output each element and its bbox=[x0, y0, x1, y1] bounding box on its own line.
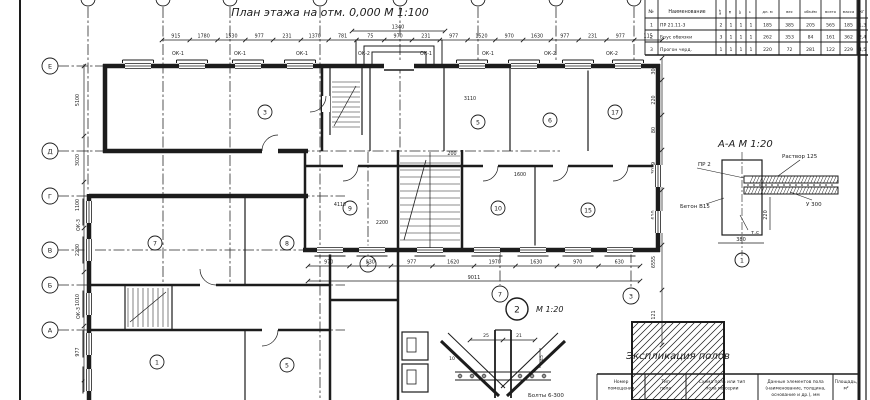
room-number: 3 bbox=[263, 109, 267, 116]
blueprint-sheet: План этажа на отм. 0,000 М 1:100 bbox=[0, 0, 870, 400]
spec-cell: 385 bbox=[785, 23, 794, 29]
grid-label: 7 bbox=[498, 291, 502, 299]
explication-header: Тип bbox=[660, 379, 670, 385]
room-number: 9 bbox=[348, 205, 352, 212]
section-label: У 300 bbox=[806, 202, 822, 208]
explication-header: (наименование, толщина, bbox=[765, 386, 825, 392]
dim-label: 1970 bbox=[489, 260, 501, 266]
grid-bubble-cut bbox=[156, 0, 170, 6]
section-label: Раствор 125 bbox=[782, 154, 818, 160]
explication-header: основание и др.), мм bbox=[771, 392, 819, 398]
room-number: 1 bbox=[155, 359, 159, 366]
section-label: Бетон В15 bbox=[680, 204, 710, 210]
window-mark: ОК-3 bbox=[76, 307, 82, 319]
spec-cell: 2,4 bbox=[859, 35, 866, 41]
detail-scale: М 1:20 bbox=[536, 305, 563, 314]
spec-header: кг bbox=[860, 9, 865, 14]
explication-header: Данные элементов пола bbox=[767, 379, 824, 385]
slab-dot bbox=[825, 184, 827, 186]
grid-label: Г bbox=[48, 193, 52, 201]
grid-label: 2 bbox=[366, 261, 370, 269]
window-mark: ОК-2 bbox=[358, 51, 370, 57]
spec-cell: 1 bbox=[730, 23, 733, 29]
spec-cell: 1 bbox=[750, 23, 753, 29]
dim-label: 1620 bbox=[447, 260, 459, 266]
spec-cell: 1 bbox=[740, 47, 743, 53]
dim-label: 80 bbox=[651, 127, 657, 133]
dim-label: 977 bbox=[75, 347, 81, 356]
dim-label: 2230 bbox=[75, 244, 81, 256]
spec-cell: 353 bbox=[785, 35, 794, 41]
walls-exterior bbox=[89, 64, 660, 400]
spec-cell: 2 bbox=[650, 35, 653, 41]
spec-cell: 122 bbox=[826, 47, 835, 53]
slab-dot bbox=[813, 184, 815, 186]
slab-dot bbox=[801, 184, 803, 186]
doors bbox=[200, 96, 628, 346]
dim-label: 1780 bbox=[198, 34, 210, 40]
room-number: 5 bbox=[476, 119, 480, 126]
dim-label: 1530 bbox=[225, 34, 237, 40]
spec-cell: 185 bbox=[763, 23, 772, 29]
walls-partitions bbox=[125, 66, 588, 400]
spec-header: всего bbox=[825, 9, 837, 14]
slab-dot bbox=[819, 184, 821, 186]
spec-cell: 185 bbox=[844, 23, 853, 29]
spec-cell: 1 bbox=[730, 47, 733, 53]
spec-cell: ПР 21.11-3 bbox=[660, 23, 685, 29]
grid-label: 3 bbox=[629, 293, 633, 301]
window-mark: ОК-1 bbox=[234, 51, 246, 57]
dim-label: 1600 bbox=[514, 172, 526, 178]
slab-dot bbox=[747, 184, 749, 186]
spec-cell: 281 bbox=[806, 47, 815, 53]
spec-cell: 1,3 bbox=[859, 23, 866, 29]
explication-header: Номер bbox=[614, 379, 629, 385]
spec-cell: 3 bbox=[720, 35, 723, 41]
grid-label: Е bbox=[48, 63, 52, 71]
room-number: 8 bbox=[285, 240, 289, 247]
spec-cell: 1 bbox=[740, 23, 743, 29]
spec-cell: 72 bbox=[787, 47, 793, 53]
dim-label: 6555 bbox=[651, 256, 657, 268]
generated-annotations: 9151780153097723113707817597023197715209… bbox=[42, 0, 870, 400]
dim-label: 977 bbox=[616, 34, 625, 40]
spec-cell: 1 bbox=[720, 47, 723, 53]
grid-label: Б bbox=[48, 282, 52, 290]
spec-header: шт bbox=[717, 8, 722, 14]
dim-label: 970 bbox=[573, 260, 582, 266]
dim-label: 1520 bbox=[475, 34, 487, 40]
dim-label: 231 bbox=[588, 34, 597, 40]
dim-label: 1010 bbox=[75, 294, 81, 306]
window-mark: ОК-1 bbox=[482, 51, 494, 57]
dim-label: 75 bbox=[367, 34, 373, 40]
window-mark: ОК-1 bbox=[420, 51, 432, 57]
explication-header: м² bbox=[843, 387, 848, 392]
slab-dot bbox=[789, 184, 791, 186]
dim-label: 781 bbox=[338, 34, 347, 40]
window-mark: ОК-1 bbox=[172, 51, 184, 57]
floor-explication: Экспликация полов bbox=[597, 351, 859, 400]
grid-bubble-cut bbox=[549, 0, 563, 6]
node-detail-2: 2 М 1:20 Болты 6-300 bbox=[441, 298, 565, 399]
explication-title: Экспликация полов bbox=[625, 351, 730, 362]
spec-cell: Брус обвязки bbox=[660, 35, 692, 41]
spec-header: № bbox=[648, 9, 654, 15]
spec-cell: 3 bbox=[650, 47, 653, 53]
grid-bubble-cut bbox=[471, 0, 485, 6]
window-mark: ОК-2 bbox=[606, 51, 618, 57]
slab-dot bbox=[783, 184, 785, 186]
spec-cell: 4,5 bbox=[859, 47, 866, 53]
spec-header: кг bbox=[737, 10, 742, 14]
section-label: т.с bbox=[751, 230, 759, 236]
section-label: ПР 2 bbox=[698, 162, 711, 168]
slab-dot bbox=[765, 184, 767, 186]
dim-label: 977 bbox=[449, 34, 458, 40]
dim-label: 5100 bbox=[75, 94, 81, 106]
dim-label: 231 bbox=[421, 34, 430, 40]
slab-dot bbox=[759, 184, 761, 186]
slab-dot bbox=[753, 184, 755, 186]
slab-dot bbox=[807, 184, 809, 186]
spec-header: вес bbox=[786, 9, 793, 14]
spec-cell: 2 bbox=[720, 23, 723, 29]
spec-header: т bbox=[747, 10, 752, 13]
detail-note: Болты 6-300 bbox=[528, 393, 564, 399]
dim-total: 9011 bbox=[468, 275, 481, 281]
window-mark: ОК-1 bbox=[296, 51, 308, 57]
room-number: 17 bbox=[611, 109, 619, 116]
spec-cell: 262 bbox=[763, 35, 772, 41]
detail-dim: 21 bbox=[516, 333, 522, 339]
section-axis-bubble: 1 bbox=[740, 257, 744, 265]
dim-label: 977 bbox=[407, 260, 416, 266]
grid-label: Д bbox=[47, 148, 52, 156]
slab-dot bbox=[771, 184, 773, 186]
room-number: 15 bbox=[584, 207, 592, 214]
spec-header: масса bbox=[843, 9, 855, 14]
spec-header: м bbox=[727, 10, 732, 13]
dim-label: 121 bbox=[651, 310, 657, 319]
dim-label: 977 bbox=[560, 34, 569, 40]
grid-bubble-cut bbox=[627, 0, 641, 6]
explication-header: Площадь, bbox=[835, 379, 858, 385]
spec-cell: 362 bbox=[844, 35, 853, 41]
spec-cell: 229 bbox=[844, 47, 853, 53]
slab-dot bbox=[831, 184, 833, 186]
section-a-a: А-А М 1:20 ПР 2 Раствор 125 У 300 Бетон … bbox=[680, 139, 838, 267]
grid-label: А bbox=[48, 327, 53, 335]
dim-label: 970 bbox=[394, 34, 403, 40]
dim-label: 630 bbox=[615, 260, 624, 266]
explication-header: пола bbox=[660, 387, 671, 392]
spec-cell: 1 bbox=[730, 35, 733, 41]
dim-label: 3020 bbox=[75, 154, 81, 166]
dim-label: 970 bbox=[505, 34, 514, 40]
spec-cell: 1 bbox=[740, 35, 743, 41]
spec-cell: 84 bbox=[808, 35, 814, 41]
explication-header: помещения bbox=[608, 387, 635, 392]
section-dim: 220 bbox=[763, 210, 769, 220]
spec-cell: Прогон черд. bbox=[660, 47, 692, 53]
spec-cell: 565 bbox=[826, 23, 835, 29]
window-mark: ОК-2 bbox=[544, 51, 556, 57]
dim-label: 915 bbox=[171, 34, 180, 40]
slab-dot bbox=[795, 184, 797, 186]
dim-label: 2200 bbox=[376, 220, 388, 226]
spec-cell: 1 bbox=[650, 23, 653, 29]
dim-label: 1100 bbox=[75, 199, 81, 211]
walls-bearing bbox=[89, 66, 656, 400]
dim-total: 1340 bbox=[392, 25, 405, 31]
detail-bubble: 2 bbox=[514, 306, 520, 316]
room-number: 5 bbox=[285, 362, 289, 369]
section-dim: 380 bbox=[736, 237, 746, 243]
dim-label: 3110 bbox=[464, 96, 476, 102]
spec-cell: 220 bbox=[763, 47, 772, 53]
grid-label: В bbox=[48, 247, 52, 255]
window-mark: ОК-3 bbox=[76, 219, 82, 231]
plan-title: План этажа на отм. 0,000 М 1:100 bbox=[231, 6, 429, 19]
dim-label: 1370 bbox=[309, 34, 321, 40]
room-number: 10 bbox=[494, 205, 502, 212]
room-number: 6 bbox=[548, 117, 552, 124]
explication-header: пола по серии bbox=[705, 387, 738, 392]
spec-header: Наименование bbox=[668, 9, 705, 15]
spec-cell: 1 bbox=[750, 47, 753, 53]
spec-cell: 205 bbox=[806, 23, 815, 29]
dim-label: 220 bbox=[651, 95, 657, 104]
detail-dim: 25 bbox=[483, 333, 489, 339]
spec-cell: 161 bbox=[826, 35, 835, 41]
dim-label: 970 bbox=[324, 260, 333, 266]
dim-label: 1630 bbox=[531, 34, 543, 40]
explication-header: Схема пола или тип bbox=[699, 379, 746, 385]
room-number: 7 bbox=[153, 240, 157, 247]
section-title: А-А М 1:20 bbox=[717, 139, 773, 150]
spec-cell: 1 bbox=[750, 35, 753, 41]
slab-dot bbox=[777, 184, 779, 186]
detail-dim: 10 bbox=[449, 356, 455, 362]
dim-label: 977 bbox=[255, 34, 264, 40]
dim-label: 1630 bbox=[530, 260, 542, 266]
dim-label: 4110 bbox=[334, 202, 346, 208]
dim-label: 231 bbox=[282, 34, 291, 40]
dim-label: 300 bbox=[651, 65, 657, 74]
spec-header: дл. м bbox=[762, 9, 772, 14]
spec-header: объём bbox=[804, 9, 817, 14]
grid-bubble-cut bbox=[81, 0, 95, 6]
